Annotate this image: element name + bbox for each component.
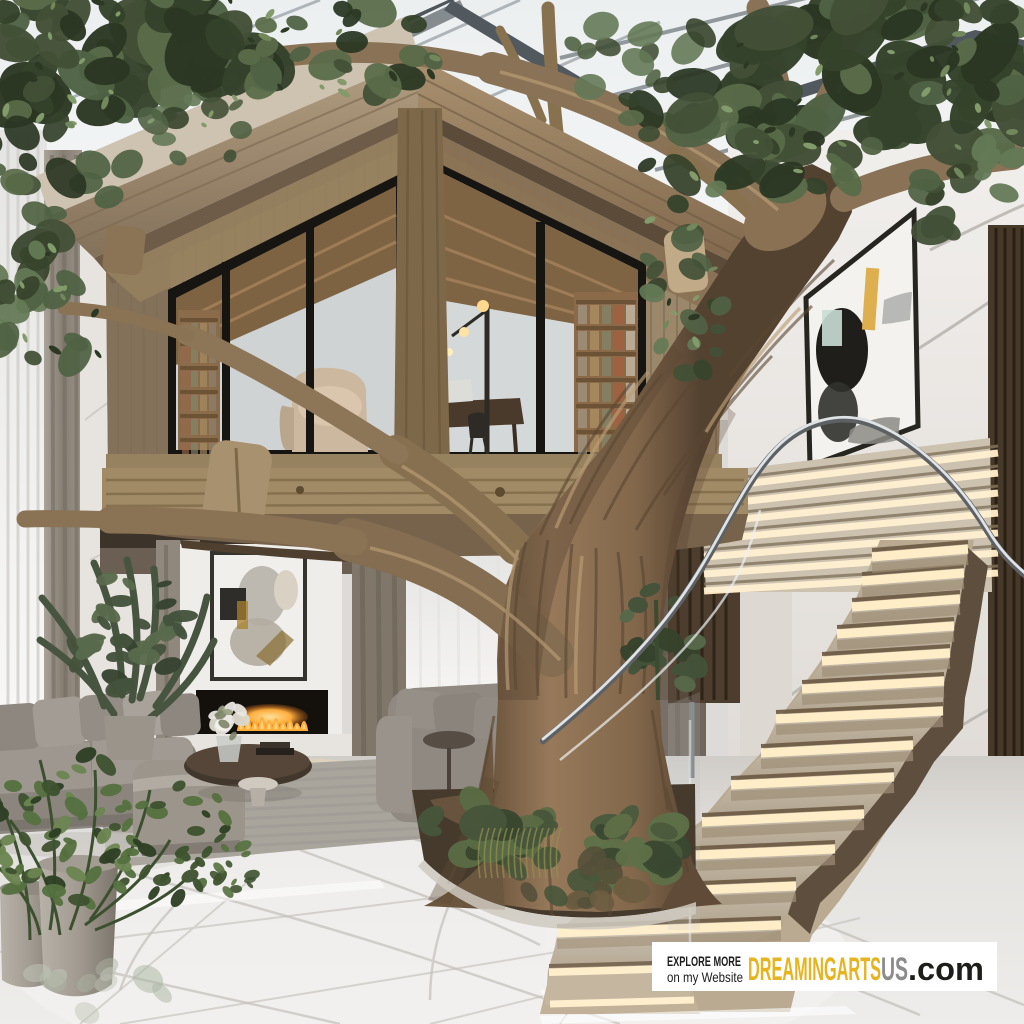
svg-text:on my Website: on my Website bbox=[667, 969, 743, 985]
svg-text:US: US bbox=[881, 951, 908, 987]
svg-text:EXPLORE MORE: EXPLORE MORE bbox=[667, 953, 741, 969]
svg-text:DREAMINGARTS: DREAMINGARTS bbox=[748, 951, 881, 987]
svg-text:.com: .com bbox=[908, 951, 984, 987]
